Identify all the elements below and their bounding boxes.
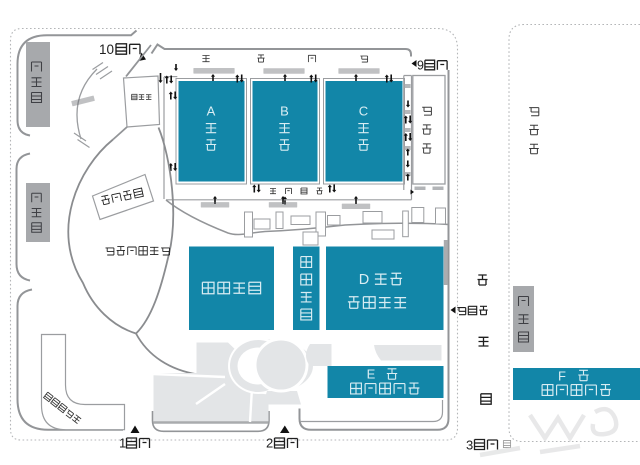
svg-text:3: 3 [466,438,473,453]
svg-text:D: D [359,272,369,288]
svg-text:A: A [207,104,216,119]
svg-text:9: 9 [417,59,424,73]
svg-text:B: B [280,104,289,119]
svg-text:C: C [359,104,368,119]
svg-text:F: F [558,369,566,384]
svg-text:10: 10 [99,42,114,57]
svg-text:1: 1 [119,436,126,451]
svg-text:2: 2 [266,436,273,451]
svg-text:E: E [367,367,376,382]
